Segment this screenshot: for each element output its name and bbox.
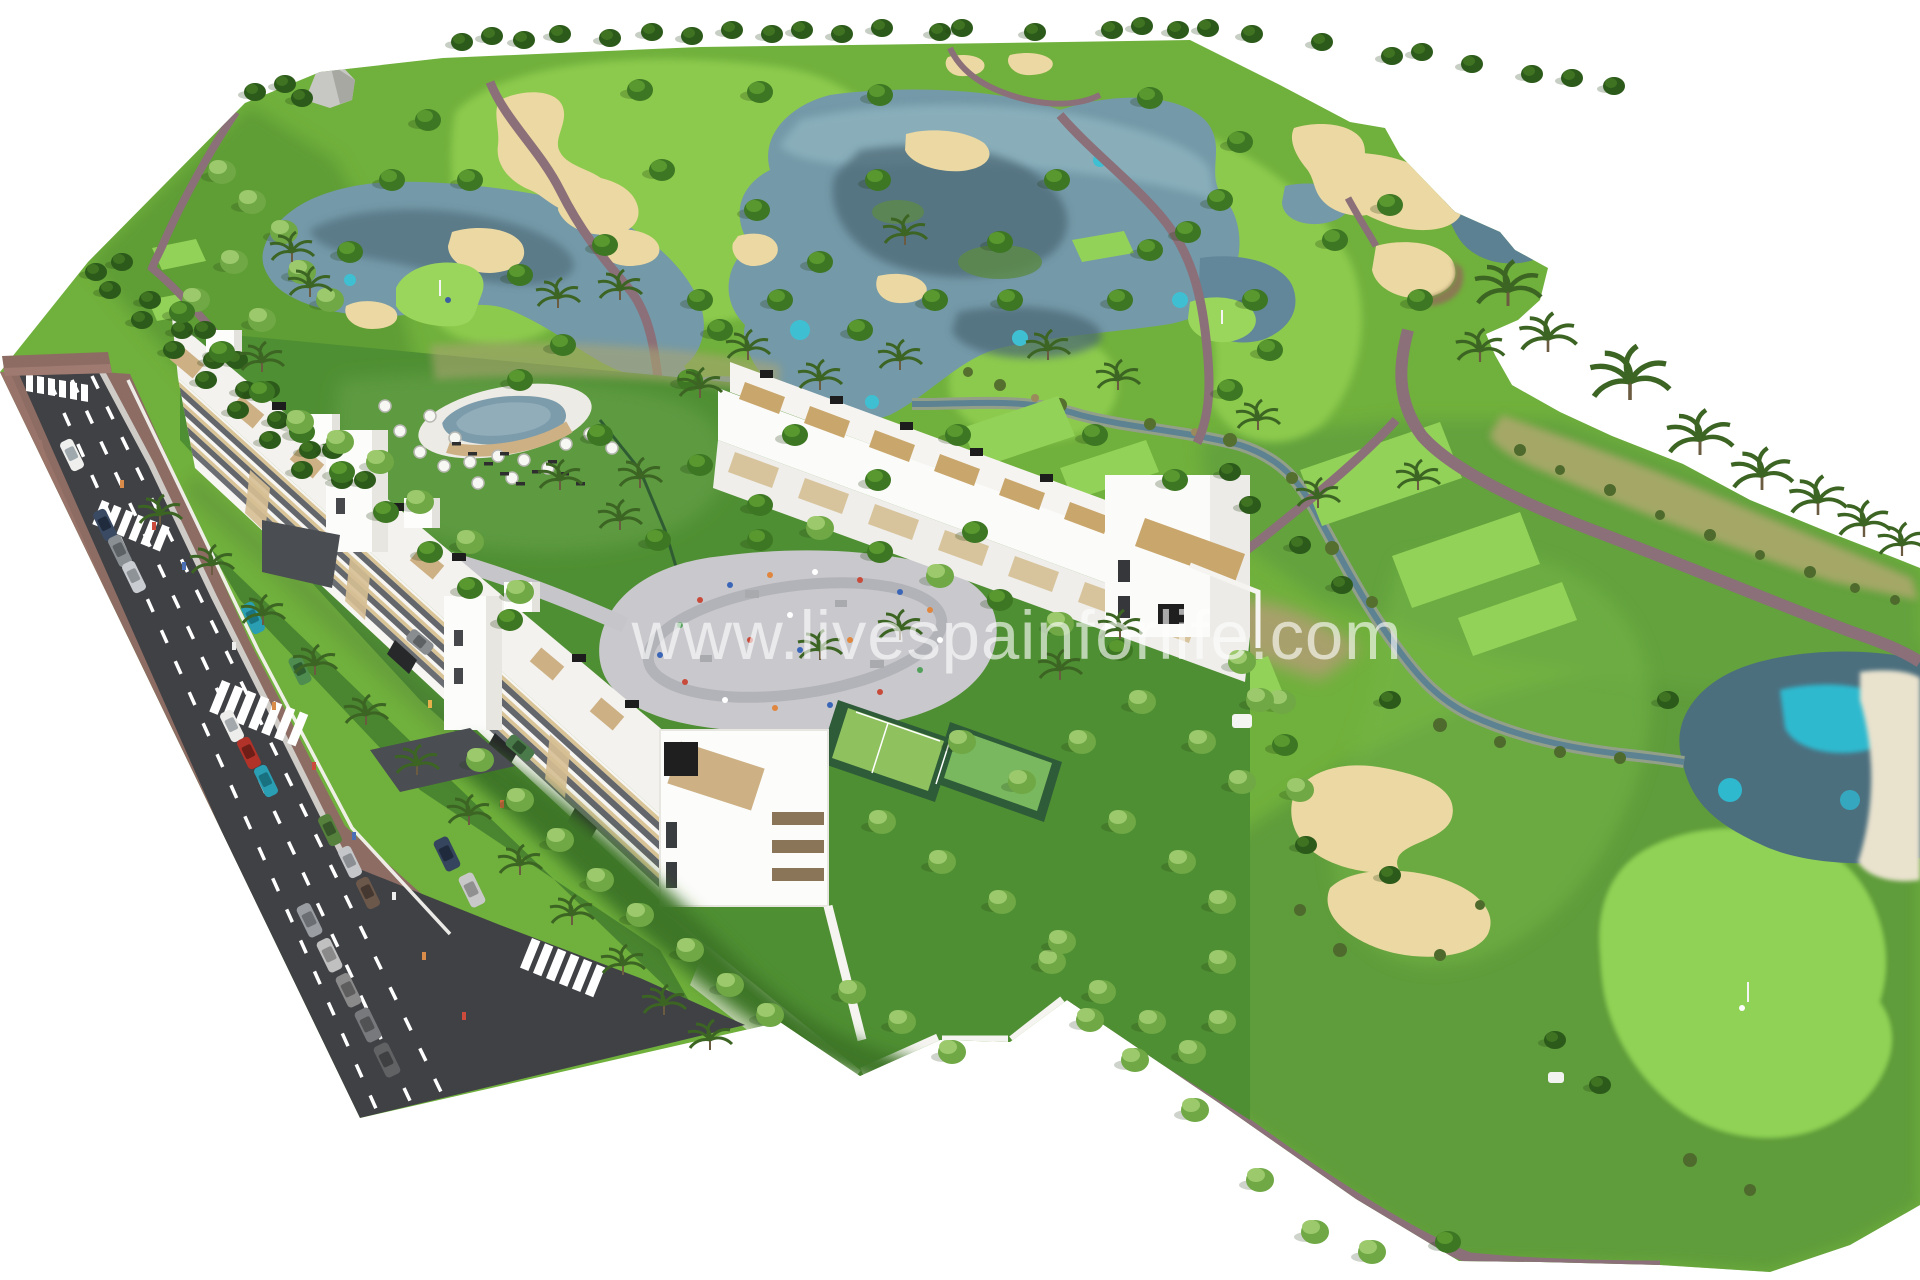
svg-text:www.livespainforlife.com: www.livespainforlife.com: [631, 597, 1403, 674]
